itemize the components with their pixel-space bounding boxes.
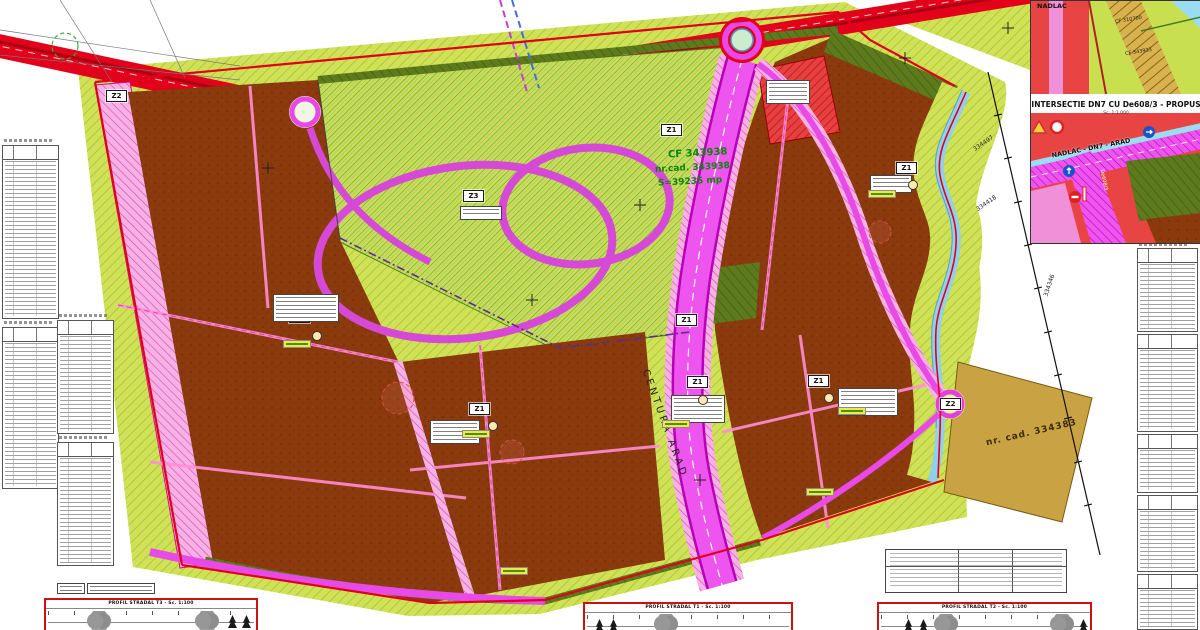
zoning-plan-canvas: Z2 Z3 Z1 Z1 Z1 Z1 Z1 Z2 Z1 Z1 CF 343938 … (0, 0, 1200, 630)
tan-parcel-334383 (944, 362, 1092, 522)
coordinate-table (2, 327, 59, 489)
intersection-inset-panel: INTERSECTIE DN7 CU De608/3 - PROPUS Sc. … (1030, 0, 1200, 244)
tree-icon (86, 611, 112, 630)
area-tag (283, 340, 311, 348)
coordinate-table (1137, 434, 1198, 493)
tree-icon (919, 619, 928, 630)
point-number (824, 393, 834, 403)
zone-label-z2-east: Z2 (940, 398, 961, 410)
point-number (698, 395, 708, 405)
point-number (908, 180, 918, 190)
point-number (312, 331, 322, 341)
area-tag (838, 407, 866, 415)
barrier-post-icon (1083, 187, 1086, 201)
profile-drawing (587, 613, 789, 630)
tree-icon (933, 614, 959, 630)
street-profile-t2: PROFIL STRADAL T2 - Sc. 1:100 (877, 602, 1092, 630)
area-tag (806, 488, 834, 496)
annotation-box (87, 583, 155, 594)
tree-icon (228, 615, 237, 628)
roundabout-access (289, 96, 321, 128)
tree-icon (904, 619, 913, 630)
street-profile-t3: PROFIL STRADAL T3 - Sc. 1:100 (44, 598, 258, 630)
annotation-box (460, 206, 502, 220)
tree-icon (1079, 619, 1088, 630)
zone-label-z2-west: Z2 (106, 90, 127, 102)
prohibition-sign-icon (1051, 121, 1063, 133)
zone-label-z1-b: Z1 (469, 403, 490, 415)
coordinate-table (1137, 334, 1198, 432)
coordinate-table (57, 442, 114, 566)
inset-scale: Sc. 1:1 000 (1031, 111, 1200, 116)
annotation-box (273, 294, 339, 322)
area-tag (868, 190, 896, 198)
zone-label-z3: Z3 (463, 190, 484, 202)
area-tag (500, 567, 528, 575)
profile-title: PROFIL STRADAL T2 - Sc. 1:100 (879, 604, 1090, 613)
coordinate-table (1137, 495, 1198, 572)
street-profile-t1: PROFIL STRADAL T1 - Sc. 1:100 (583, 602, 793, 630)
tree-icon (242, 615, 251, 628)
title-block (885, 549, 1067, 593)
profile-title: PROFIL STRADAL T3 - Sc. 1:100 (46, 600, 256, 609)
profile-drawing (48, 609, 254, 630)
coordinate-table (1137, 574, 1198, 630)
tree-icon (609, 619, 618, 630)
zone-label-z1-g: Z1 (661, 124, 682, 136)
annotation-box (766, 80, 810, 104)
tree-icon (194, 611, 220, 630)
zone-label-z1-c: Z1 (676, 314, 697, 326)
coordinate-table (2, 145, 59, 319)
profile-title: PROFIL STRADAL T1 - Sc. 1:100 (585, 604, 791, 613)
roundabout-dn7 (719, 17, 765, 63)
site-plan-map (0, 0, 1200, 630)
coordinate-table (1137, 248, 1198, 332)
zone-label-z1-d: Z1 (687, 376, 708, 388)
inset-map (1031, 1, 1200, 243)
annotation-box (57, 583, 85, 594)
coordinate-table-title (59, 314, 107, 317)
coordinate-table-title (4, 139, 52, 142)
zone-label-z1-e: Z1 (808, 375, 829, 387)
coordinate-table-title (4, 321, 52, 324)
profile-drawing (881, 613, 1088, 630)
tree-icon (1049, 614, 1075, 630)
point-number (488, 421, 498, 431)
tree-icon (595, 619, 604, 630)
coordinate-table-title (59, 436, 107, 439)
area-tag (462, 430, 490, 438)
area-tag (662, 420, 690, 428)
coordinate-table (57, 320, 114, 434)
inset-road-nadlac: NADLAC (1037, 2, 1067, 10)
tree-icon (653, 614, 679, 630)
zone-label-z1-f: Z1 (896, 162, 917, 174)
